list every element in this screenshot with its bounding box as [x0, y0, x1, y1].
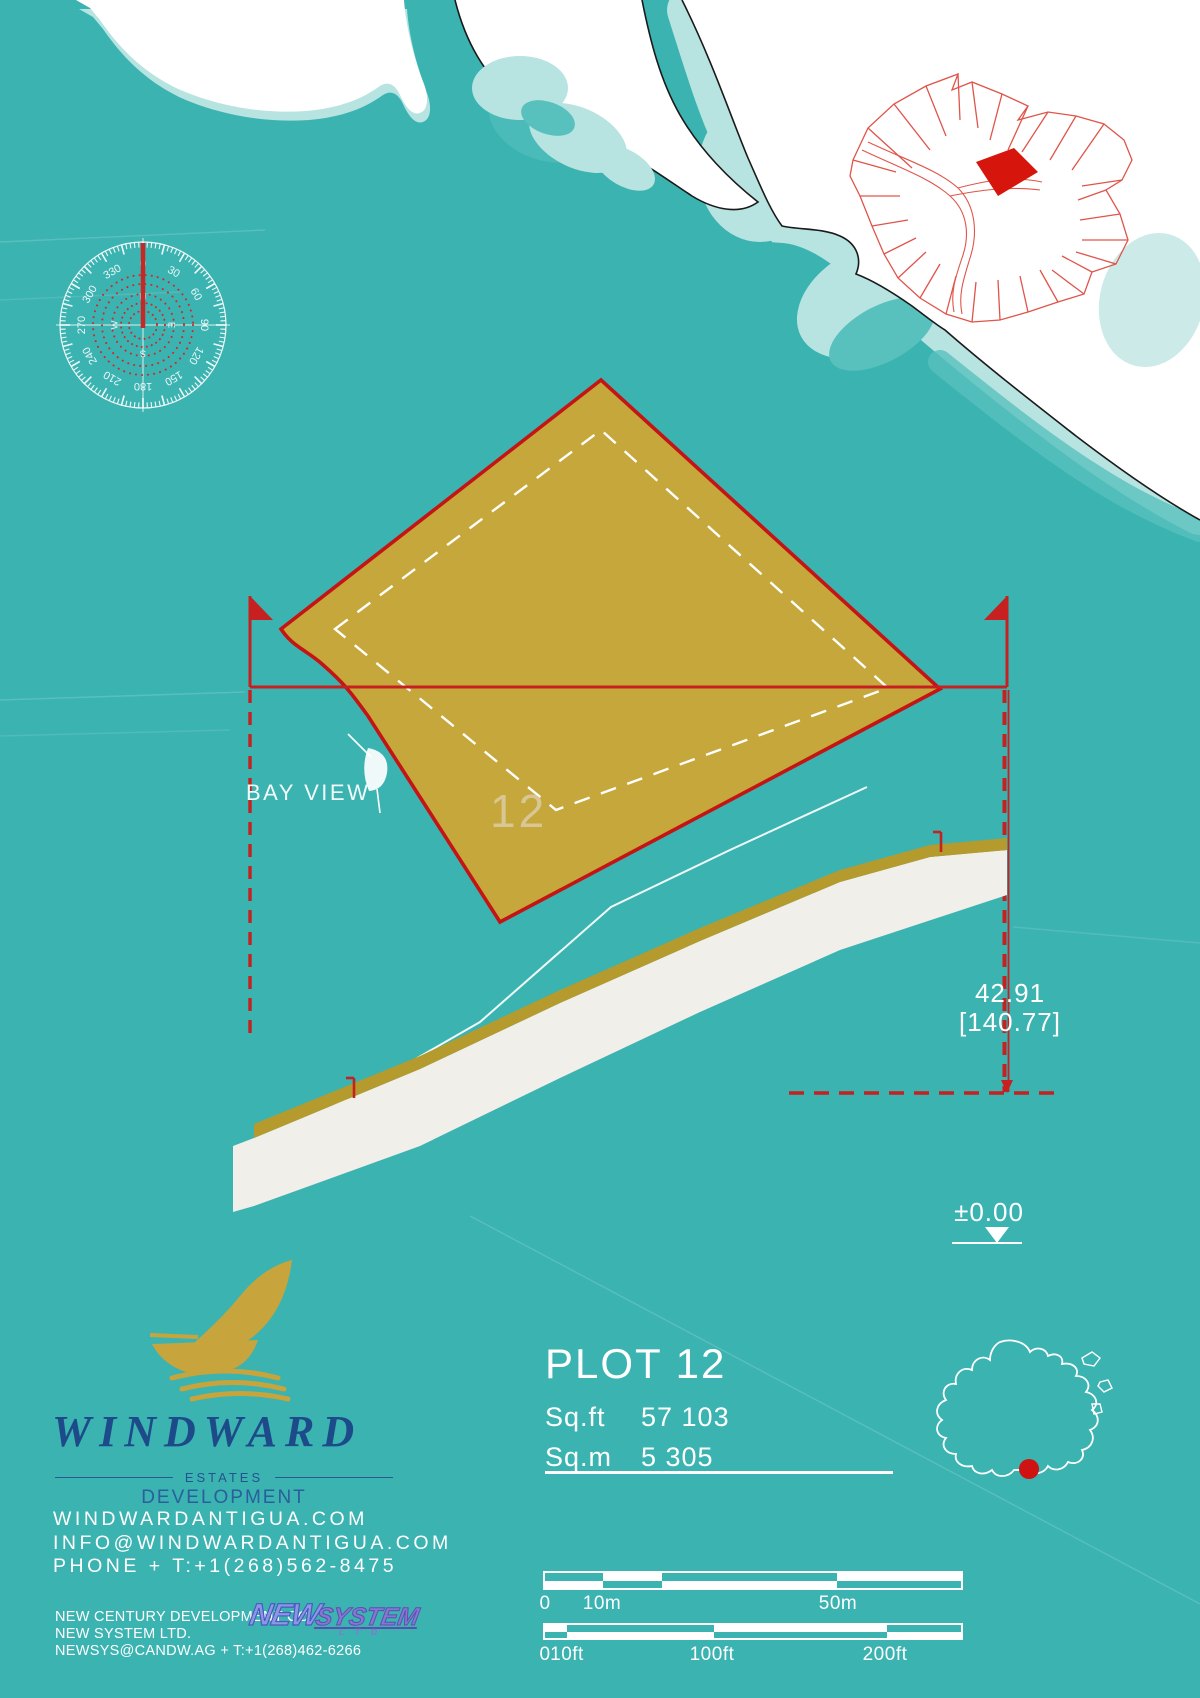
datum-label: ±0.00 [954, 1197, 1024, 1228]
datum-marker [952, 1227, 1022, 1243]
compass-cardinal-label: S [140, 348, 146, 359]
plot-12-polygon [281, 380, 940, 922]
sqm-value: 5 305 [641, 1442, 714, 1473]
antigua-inset-map [937, 1340, 1112, 1479]
brand-name: WINDWARD [52, 1406, 404, 1457]
compass-degree-label: 180 [134, 380, 152, 392]
scale-bar-metric [543, 1571, 963, 1590]
new-system-logo-ltd: L T D [338, 1627, 382, 1637]
new-system-logo: NEWSYSTEM L T D [247, 1597, 422, 1633]
contact-block: WINDWARDANTIGUA.COM INFO@WINDWARDANTIGUA… [53, 1508, 452, 1579]
compass-degree-label: 270 [76, 316, 88, 334]
compass-cardinal-label: W [110, 320, 121, 329]
divider-line [275, 1477, 393, 1479]
plot-number-label: 12 [490, 784, 547, 838]
compass-degree-label: 90 [198, 319, 210, 331]
compass-degree-label: 240 [80, 345, 100, 367]
scale-metric-0: 0 [539, 1593, 550, 1615]
plot-info-block: PLOT 12 Sq.ft 57 103 Sq.m 5 305 [545, 1340, 730, 1473]
scale-metric-10m: 10m [583, 1593, 621, 1615]
scale-imperial-100ft: 100ft [690, 1644, 735, 1666]
scale-imperial-200ft: 200ft [863, 1644, 908, 1666]
compass-degree-label: 150 [163, 368, 185, 388]
scale-bar-imperial [543, 1623, 963, 1640]
datum-triangle-icon [985, 1227, 1009, 1243]
compass-cardinal-label: E [166, 322, 177, 328]
brand-subtitle-row: ESTATES [55, 1470, 393, 1485]
email-text: INFO@WINDWARDANTIGUA.COM [53, 1532, 452, 1556]
section-flag-right-icon [984, 596, 1007, 620]
bay-view-label: BAY VIEW [246, 780, 370, 806]
dimension-value: 42.91 [959, 979, 1061, 1008]
compass-degree-label: 330 [102, 262, 124, 282]
brand-division: DEVELOPMENT [55, 1487, 393, 1509]
plot-title: PLOT 12 [545, 1340, 730, 1388]
developer-line3: NEWSYS@CANDW.AG + T:+1(268)462-6266 [55, 1643, 361, 1660]
dimension-secondary: [140.77] [959, 1008, 1061, 1037]
phone-text: PHONE + T:+1(268)562-8475 [53, 1555, 452, 1579]
area-sqft-row: Sq.ft 57 103 [545, 1402, 730, 1433]
area-sqm-row: Sq.m 5 305 [545, 1442, 730, 1473]
sqft-value: 57 103 [641, 1402, 730, 1433]
sqm-label: Sq.m [545, 1442, 641, 1473]
brand-subtitle: ESTATES [185, 1470, 263, 1485]
website-text: WINDWARDANTIGUA.COM [53, 1508, 452, 1532]
section-flag-left-icon [250, 596, 273, 620]
profile-body [233, 850, 1007, 1212]
compass-rose: 0306090120150180210240270300330NESW [56, 238, 230, 412]
scale-imperial-10ft: 10ft [550, 1644, 584, 1666]
compass-degree-label: 30 [165, 264, 182, 281]
plot-info-underline [545, 1471, 893, 1474]
site-plan-poster: 0306090120150180210240270300330NESW [0, 0, 1200, 1698]
sqft-label: Sq.ft [545, 1402, 641, 1433]
antigua-outline [937, 1340, 1098, 1476]
divider-line [55, 1477, 173, 1479]
sailboat-logo-icon [150, 1260, 292, 1399]
scale-imperial-0: 0 [539, 1644, 550, 1666]
plot-location-dot [1019, 1459, 1039, 1479]
compass-degree-label: 60 [188, 286, 205, 303]
dimension-label: 42.91 [140.77] [959, 979, 1061, 1037]
compass-degree-label: 300 [80, 284, 100, 306]
compass-degree-label: 210 [102, 368, 124, 388]
compass-degree-label: 120 [186, 345, 206, 367]
landmass-north-east [682, 0, 1200, 520]
new-system-logo-new: NEW [247, 1597, 322, 1632]
scale-metric-50m: 50m [819, 1593, 857, 1615]
